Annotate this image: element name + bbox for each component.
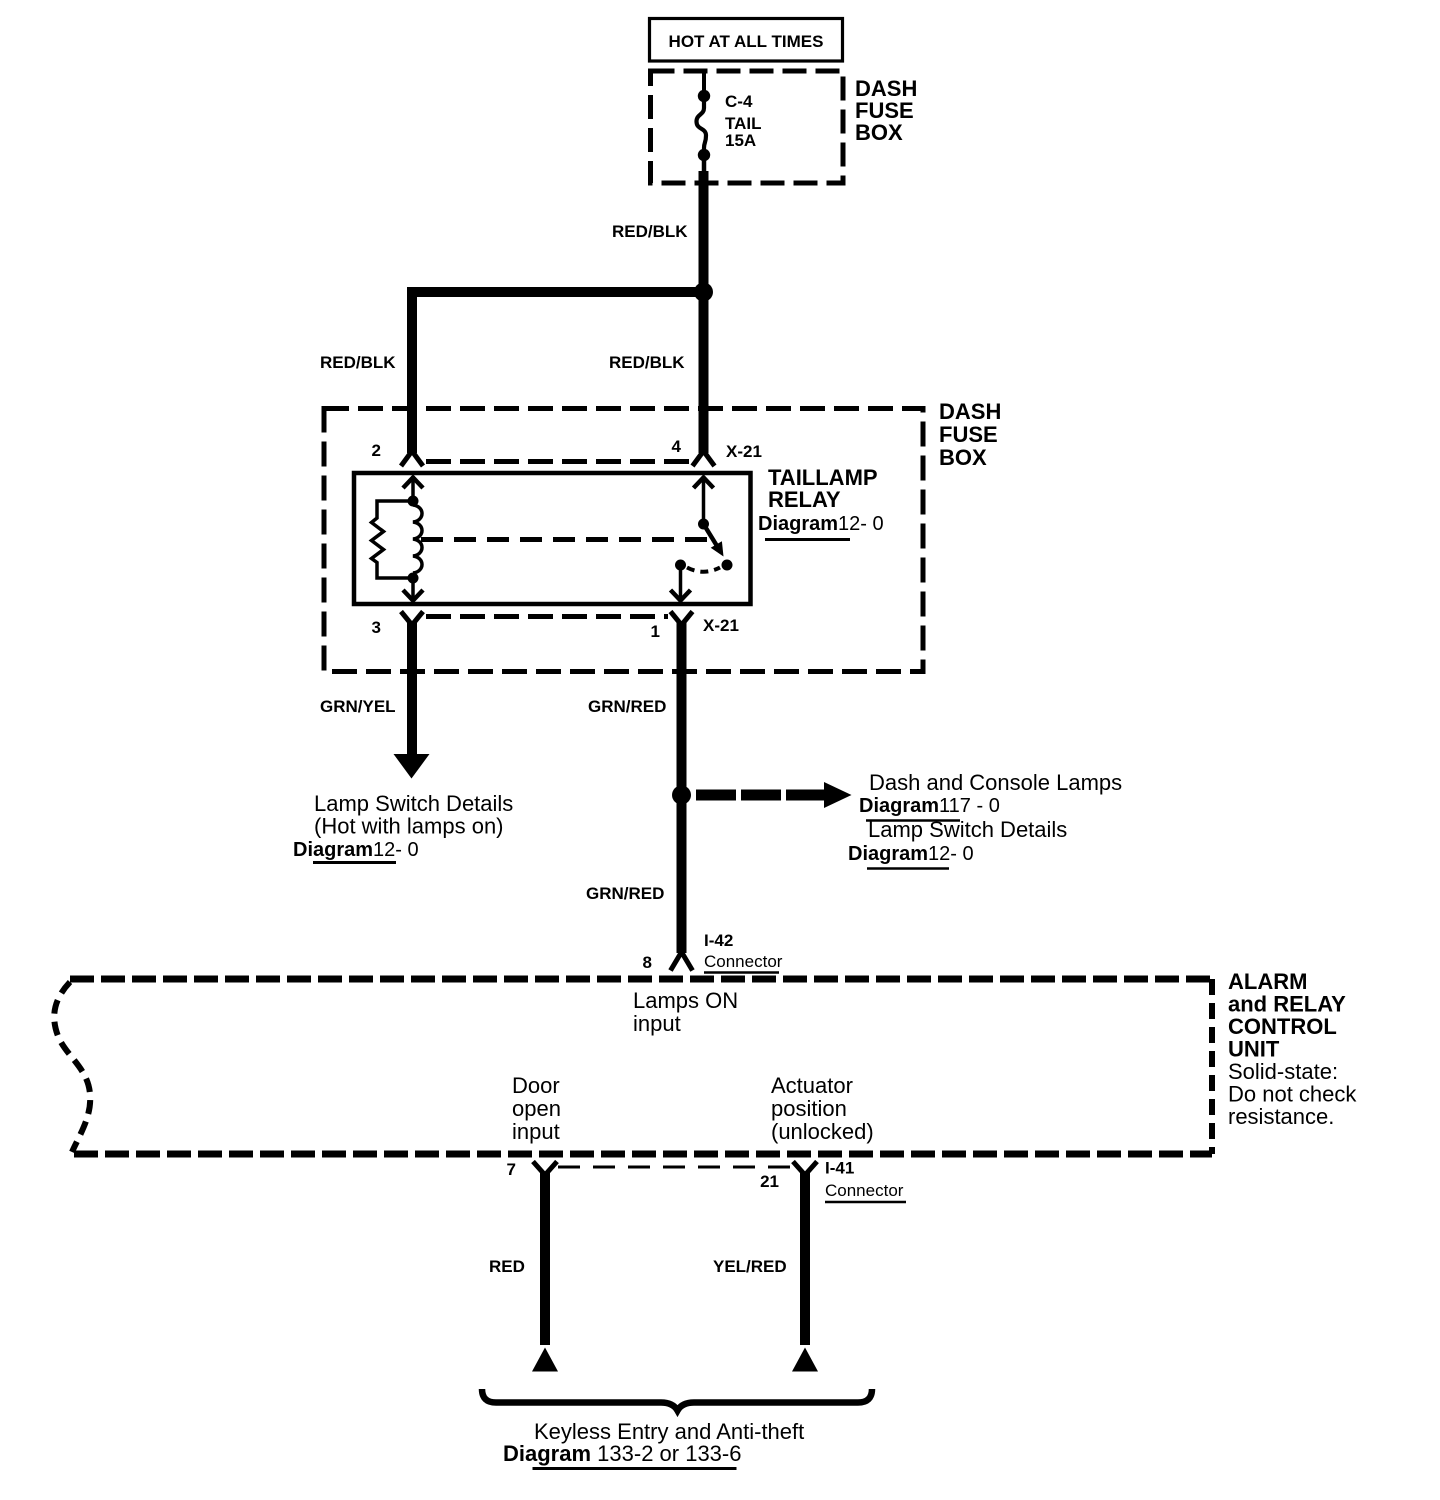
- svg-text:BOX: BOX: [855, 120, 903, 145]
- svg-text:Diagram 133-2 or 133-6: Diagram 133-2 or 133-6: [503, 1441, 741, 1466]
- svg-text:Diagram12- 0: Diagram12- 0: [758, 513, 884, 535]
- svg-text:1: 1: [651, 622, 660, 641]
- svg-text:Diagram12- 0: Diagram12- 0: [293, 839, 419, 861]
- svg-text:and RELAY: and RELAY: [1228, 992, 1346, 1017]
- svg-text:15A: 15A: [725, 131, 756, 150]
- svg-text:8: 8: [643, 953, 652, 972]
- svg-text:resistance.: resistance.: [1228, 1104, 1334, 1129]
- svg-text:Diagram117 - 0: Diagram117 - 0: [859, 795, 1000, 817]
- svg-text:RED/BLK: RED/BLK: [609, 353, 685, 372]
- svg-text:open: open: [512, 1096, 561, 1121]
- svg-text:Solid-state:: Solid-state:: [1228, 1059, 1338, 1084]
- svg-text:CONTROL: CONTROL: [1228, 1014, 1337, 1039]
- svg-text:X-21: X-21: [726, 442, 762, 461]
- svg-text:Lamp Switch Details: Lamp Switch Details: [314, 791, 513, 816]
- svg-text:Do not check: Do not check: [1228, 1082, 1357, 1107]
- svg-text:input: input: [512, 1119, 560, 1144]
- svg-text:GRN/YEL: GRN/YEL: [320, 697, 396, 716]
- svg-text:HOT AT ALL TIMES: HOT AT ALL TIMES: [669, 32, 824, 51]
- svg-text:RED: RED: [489, 1257, 525, 1276]
- svg-text:Diagram12- 0: Diagram12- 0: [848, 843, 974, 865]
- svg-text:(Hot with lamps on): (Hot with lamps on): [314, 814, 504, 839]
- svg-text:GRN/RED: GRN/RED: [588, 697, 666, 716]
- svg-text:3: 3: [372, 618, 381, 637]
- svg-text:C-4: C-4: [725, 92, 753, 111]
- svg-text:2: 2: [372, 441, 381, 460]
- svg-text:position: position: [771, 1096, 847, 1121]
- svg-text:BOX: BOX: [939, 445, 987, 470]
- svg-text:Connector: Connector: [704, 952, 783, 971]
- svg-text:FUSE: FUSE: [939, 422, 998, 447]
- svg-text:7: 7: [507, 1160, 516, 1179]
- svg-text:RED/BLK: RED/BLK: [612, 222, 688, 241]
- svg-text:Lamp Switch Details: Lamp Switch Details: [868, 817, 1067, 842]
- svg-text:Connector: Connector: [825, 1181, 904, 1200]
- svg-text:DASH: DASH: [939, 399, 1001, 424]
- svg-text:I-41: I-41: [825, 1159, 854, 1178]
- svg-text:4: 4: [672, 437, 682, 456]
- svg-text:I-42: I-42: [704, 931, 733, 950]
- svg-text:Lamps ON: Lamps ON: [633, 988, 738, 1013]
- svg-text:(unlocked): (unlocked): [771, 1119, 874, 1144]
- svg-text:YEL/RED: YEL/RED: [713, 1257, 787, 1276]
- svg-text:21: 21: [760, 1172, 779, 1191]
- svg-text:Dash and Console Lamps: Dash and Console Lamps: [869, 770, 1122, 795]
- svg-text:GRN/RED: GRN/RED: [586, 884, 664, 903]
- svg-text:input: input: [633, 1011, 681, 1036]
- svg-text:Door: Door: [512, 1073, 560, 1098]
- svg-text:RELAY: RELAY: [768, 487, 841, 512]
- svg-text:Actuator: Actuator: [771, 1073, 853, 1098]
- svg-text:X-21: X-21: [703, 616, 739, 635]
- svg-text:ALARM: ALARM: [1228, 969, 1307, 994]
- svg-text:RED/BLK: RED/BLK: [320, 353, 396, 372]
- svg-text:UNIT: UNIT: [1228, 1037, 1280, 1062]
